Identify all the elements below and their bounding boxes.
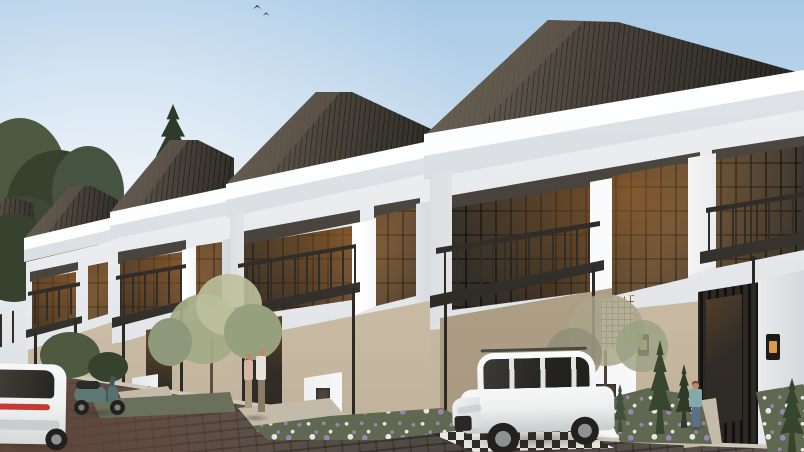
person-legs [258, 380, 265, 412]
wall-lantern-icon [766, 334, 780, 360]
hatchback-rear-window [0, 369, 55, 398]
visitor [684, 380, 708, 432]
townhouse-street-render [0, 0, 804, 452]
person-torso [244, 360, 253, 380]
scooter [68, 374, 130, 418]
person-torso [256, 356, 266, 380]
tree-canopy [148, 318, 192, 366]
white-suv [451, 342, 622, 452]
person-torso [689, 389, 702, 407]
suv-wheel [487, 422, 520, 452]
scooter-seat [76, 381, 100, 389]
hatchback-taillight-icon [0, 403, 50, 410]
couple [240, 348, 272, 424]
canopy-post [752, 256, 755, 420]
suv-grille [454, 416, 471, 431]
scooter-wheel [74, 400, 89, 415]
person-legs [245, 380, 252, 408]
canopy-post [352, 288, 355, 420]
suv-windows [483, 357, 590, 390]
white-hatchback [0, 353, 77, 452]
person-head [258, 349, 265, 356]
scooter-wheel [110, 400, 125, 415]
person-shadow [240, 414, 270, 422]
person-legs [692, 407, 700, 427]
